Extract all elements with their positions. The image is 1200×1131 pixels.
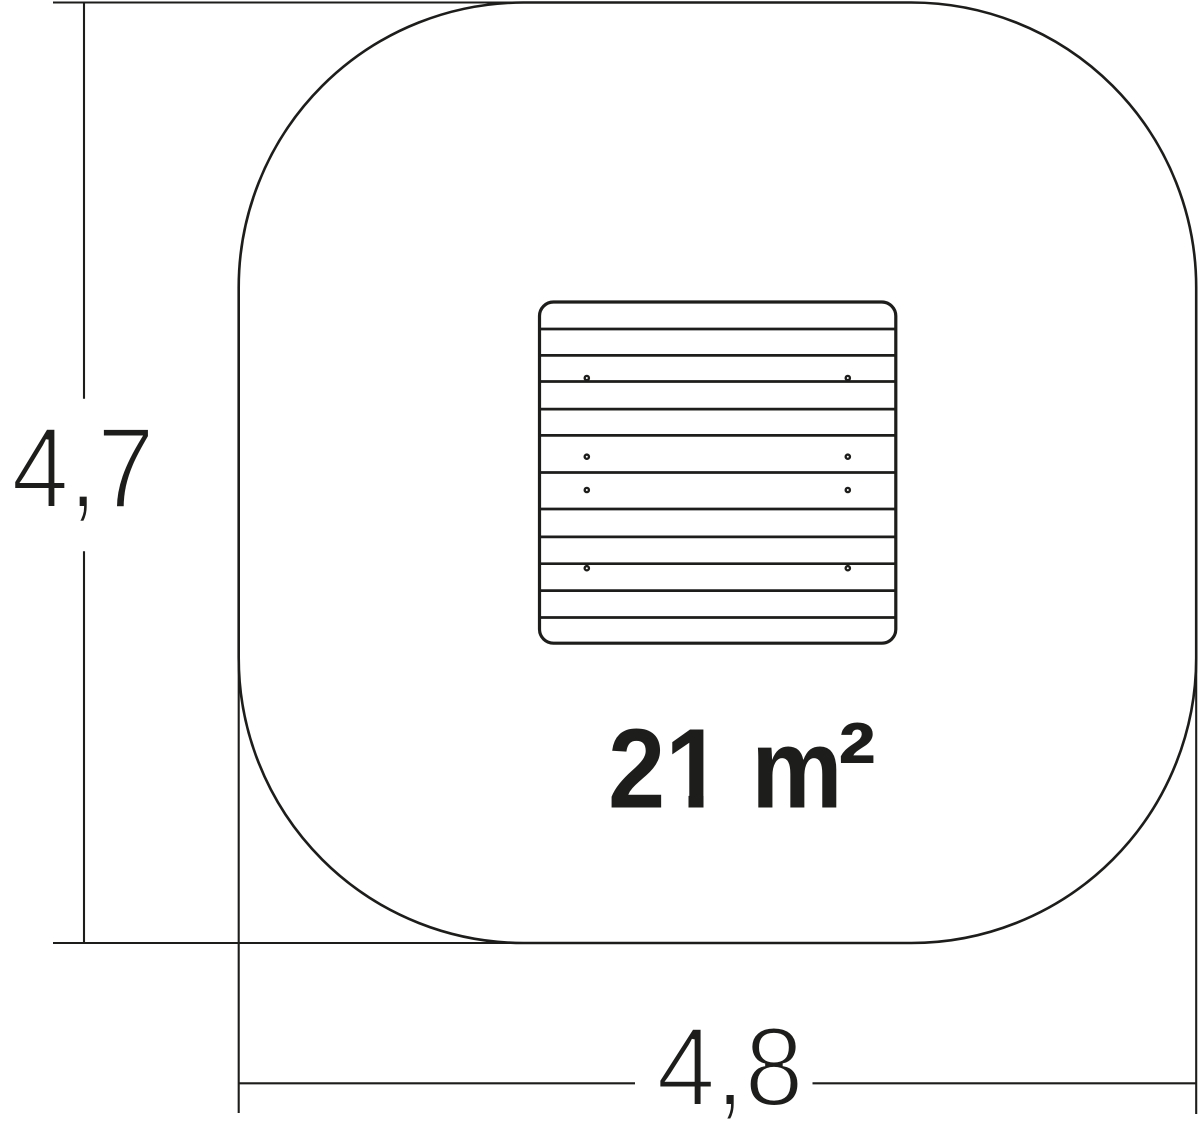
svg-text:4,8: 4,8 <box>657 1005 804 1130</box>
svg-text:4,7: 4,7 <box>12 405 155 533</box>
svg-text:²: ² <box>838 700 876 827</box>
svg-text:21 m: 21 m <box>608 706 843 833</box>
